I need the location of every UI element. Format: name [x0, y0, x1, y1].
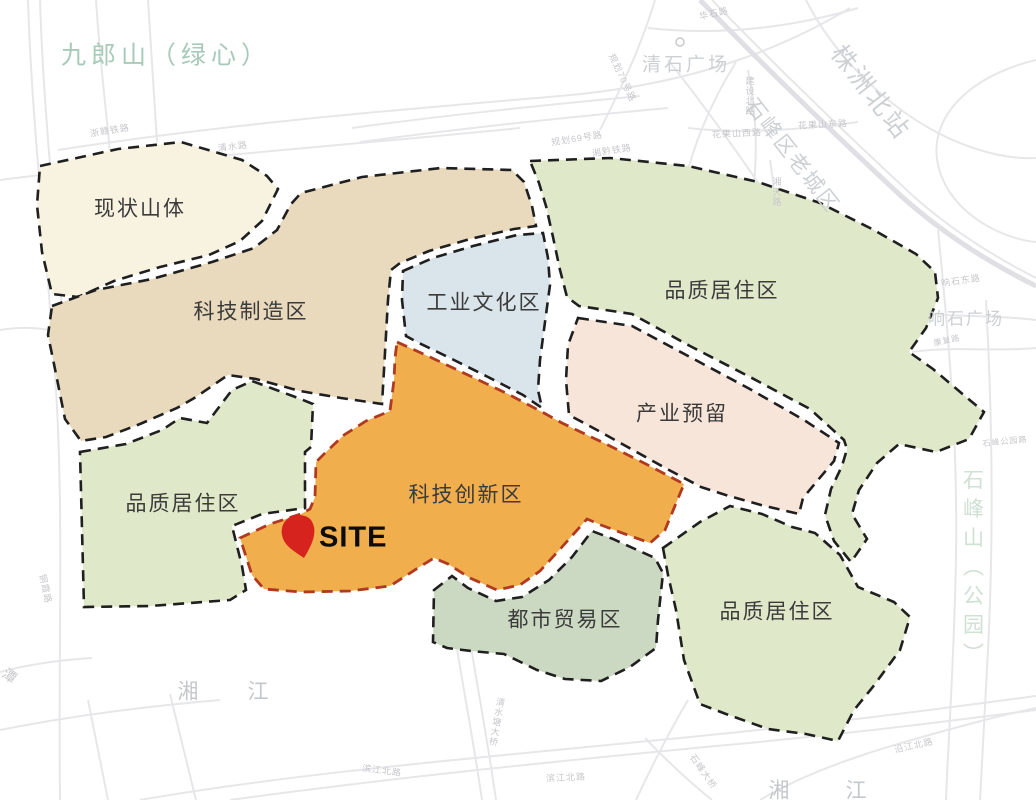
road-label-jianshe-north: 建设北路	[745, 76, 754, 116]
landmark-jiulangshan: 九郎山（绿心）	[61, 44, 271, 69]
zone-label-quality-residential-w: 品质居住区	[126, 494, 241, 515]
river-label-jiang: 江	[248, 682, 269, 703]
zone-label-existing-mountain: 现状山体	[94, 199, 186, 220]
site-label: SITE	[319, 522, 387, 555]
zone-label-quality-residential-se: 品质居住区	[720, 602, 835, 623]
planning-map: 九郎山（绿心） 清石广场 株洲北站 石峰区老城区 响石广场 石峰山（公园） 湘 …	[0, 0, 1036, 800]
zones-layer	[37, 142, 984, 741]
landmark-qingshi-plaza: 清石广场	[642, 56, 730, 75]
zone-label-urban-trade: 都市贸易区	[508, 610, 623, 631]
zone-quality-residential-se	[663, 506, 910, 741]
zone-label-tech-innovation: 科技创新区	[409, 485, 524, 506]
river-label-xiang: 湘	[769, 781, 790, 800]
zone-label-industry-reserve: 产业预留	[636, 404, 728, 425]
road-label-xiangtian: 湘天路	[772, 177, 781, 207]
river-label-xiang: 湘	[178, 682, 199, 703]
landmark-shifeng-park: 石峰山（公园）	[962, 469, 983, 672]
river-label-jiang: 江	[846, 781, 867, 800]
zone-label-industrial-culture: 工业文化区	[427, 293, 542, 314]
zone-label-tech-manufacturing: 科技制造区	[194, 302, 309, 323]
landmark-xiangshi-plaza: 响石广场	[928, 311, 1004, 328]
zone-label-quality-residential-ne: 品质居住区	[665, 281, 780, 302]
plaza-marker-icon	[676, 38, 684, 46]
